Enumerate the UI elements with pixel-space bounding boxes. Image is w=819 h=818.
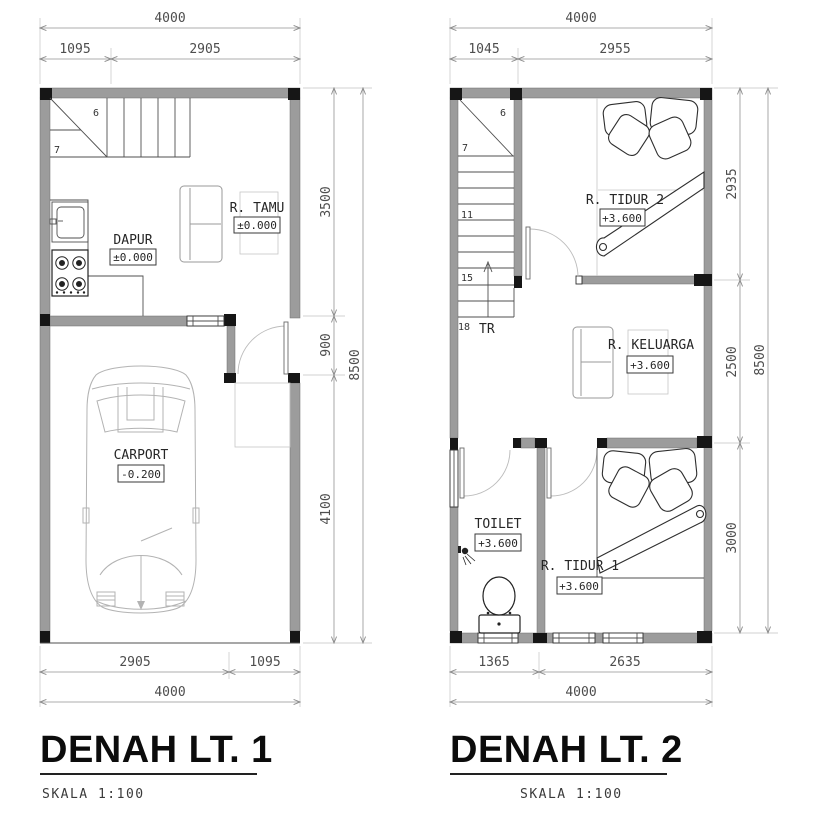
dim-top-seg: 1045 bbox=[468, 42, 499, 57]
room-level: ±0.000 bbox=[113, 251, 153, 264]
plan1-stairs-icon: 6 7 bbox=[50, 98, 190, 157]
dim-bottom-seg: 2905 bbox=[119, 655, 150, 670]
room-level: +3.600 bbox=[630, 359, 670, 372]
dim-right-seg: 3000 bbox=[725, 522, 740, 553]
room-label-dapur: DAPUR ±0.000 bbox=[110, 233, 156, 265]
dim-bottom-total: 4000 bbox=[154, 685, 185, 700]
bed-icon-tidur2 bbox=[596, 97, 704, 276]
window-icon-dapur bbox=[187, 316, 224, 326]
stair-number: 11 bbox=[461, 210, 473, 221]
sink-icon bbox=[50, 202, 88, 242]
dim-right-seg: 900 bbox=[319, 333, 334, 356]
car-icon bbox=[83, 366, 199, 613]
room-level: +3.600 bbox=[478, 537, 518, 550]
dim-top-seg: 2905 bbox=[189, 42, 220, 57]
dim-right-seg: 2935 bbox=[725, 168, 740, 199]
plan-lt2: 6 7 11 15 18 TR bbox=[450, 11, 778, 802]
dim-top-seg: 2955 bbox=[599, 42, 630, 57]
dim-right-seg: 2500 bbox=[725, 346, 740, 377]
dim-bottom-total: 4000 bbox=[565, 685, 596, 700]
door-icon-tidur2 bbox=[526, 227, 578, 279]
stair-number: 18 bbox=[458, 322, 470, 333]
room-label-toilet: TOILET +3.600 bbox=[475, 517, 522, 551]
drawing-canvas: 6 7 bbox=[0, 0, 819, 818]
dim-bottom-seg: 2635 bbox=[609, 655, 640, 670]
room-level: ±0.000 bbox=[237, 219, 277, 232]
entry-step-outline bbox=[235, 383, 290, 447]
stair-number: 6 bbox=[93, 108, 99, 119]
stair-number: 6 bbox=[500, 108, 506, 119]
dim-right-seg: 4100 bbox=[319, 493, 334, 524]
plan1-dimensions: 4000 1095 2905 3500 900 4100 8500 2905 1… bbox=[40, 11, 372, 707]
plan2-stairs-icon: 6 7 11 15 18 TR bbox=[458, 100, 514, 337]
stove-icon bbox=[52, 250, 88, 296]
dim-right-seg: 3500 bbox=[319, 186, 334, 217]
room-name: TOILET bbox=[475, 517, 522, 532]
dim-right-total: 8500 bbox=[753, 344, 768, 375]
room-name: R. TAMU bbox=[230, 201, 285, 216]
plan-lt1: 6 7 bbox=[40, 11, 372, 802]
room-label-keluarga: R. KELUARGA +3.600 bbox=[608, 338, 694, 373]
entry-door-icon bbox=[238, 322, 288, 374]
stair-number: 7 bbox=[54, 145, 60, 156]
door-icon-tidur1 bbox=[547, 448, 597, 498]
room-label-tidur1: R. TIDUR 1 +3.600 bbox=[541, 559, 619, 594]
dim-top-total: 4000 bbox=[565, 11, 596, 26]
dim-top-total: 4000 bbox=[154, 11, 185, 26]
plan2-scale-label: SKALA 1:100 bbox=[520, 787, 623, 802]
plan2-title: DENAH LT. 2 bbox=[450, 729, 683, 771]
two-floor-plans-svg: 6 7 bbox=[0, 0, 819, 818]
room-name: R. TIDUR 1 bbox=[541, 559, 619, 574]
room-name: R. TIDUR 2 bbox=[586, 193, 664, 208]
room-name: DAPUR bbox=[113, 233, 152, 248]
plan2-title-block: DENAH LT. 2 SKALA 1:100 bbox=[450, 729, 683, 802]
window-icon-tidur1-a bbox=[553, 633, 595, 643]
room-label-carport: CARPORT -0.200 bbox=[114, 448, 169, 482]
room-level: +3.600 bbox=[602, 212, 642, 225]
room-name: CARPORT bbox=[114, 448, 169, 463]
stair-number: 15 bbox=[461, 273, 473, 284]
shower-icon bbox=[458, 546, 475, 565]
plan1-title: DENAH LT. 1 bbox=[40, 729, 273, 771]
door-icon-toilet bbox=[460, 448, 510, 498]
plan1-scale-label: SKALA 1:100 bbox=[42, 787, 145, 802]
dim-right-total: 8500 bbox=[348, 349, 363, 380]
room-name: R. KELUARGA bbox=[608, 338, 694, 353]
toilet-icon bbox=[479, 577, 520, 633]
sofa-icon bbox=[180, 186, 222, 262]
plan1-walls bbox=[40, 88, 300, 643]
dim-bottom-seg: 1095 bbox=[249, 655, 280, 670]
stair-number: 7 bbox=[462, 143, 468, 154]
window-icon-toilet bbox=[478, 633, 518, 643]
plan1-title-block: DENAH LT. 1 SKALA 1:100 bbox=[40, 729, 273, 802]
stair-direction-label: TR bbox=[479, 322, 495, 337]
dim-top-seg: 1095 bbox=[59, 42, 90, 57]
room-label-tamu: R. TAMU ±0.000 bbox=[230, 201, 285, 233]
window-icon-tidur1-b bbox=[603, 633, 643, 643]
room-level: -0.200 bbox=[121, 468, 161, 481]
window-icon-toilet-side bbox=[450, 450, 458, 507]
dim-bottom-seg: 1365 bbox=[478, 655, 509, 670]
room-level: +3.600 bbox=[559, 580, 599, 593]
